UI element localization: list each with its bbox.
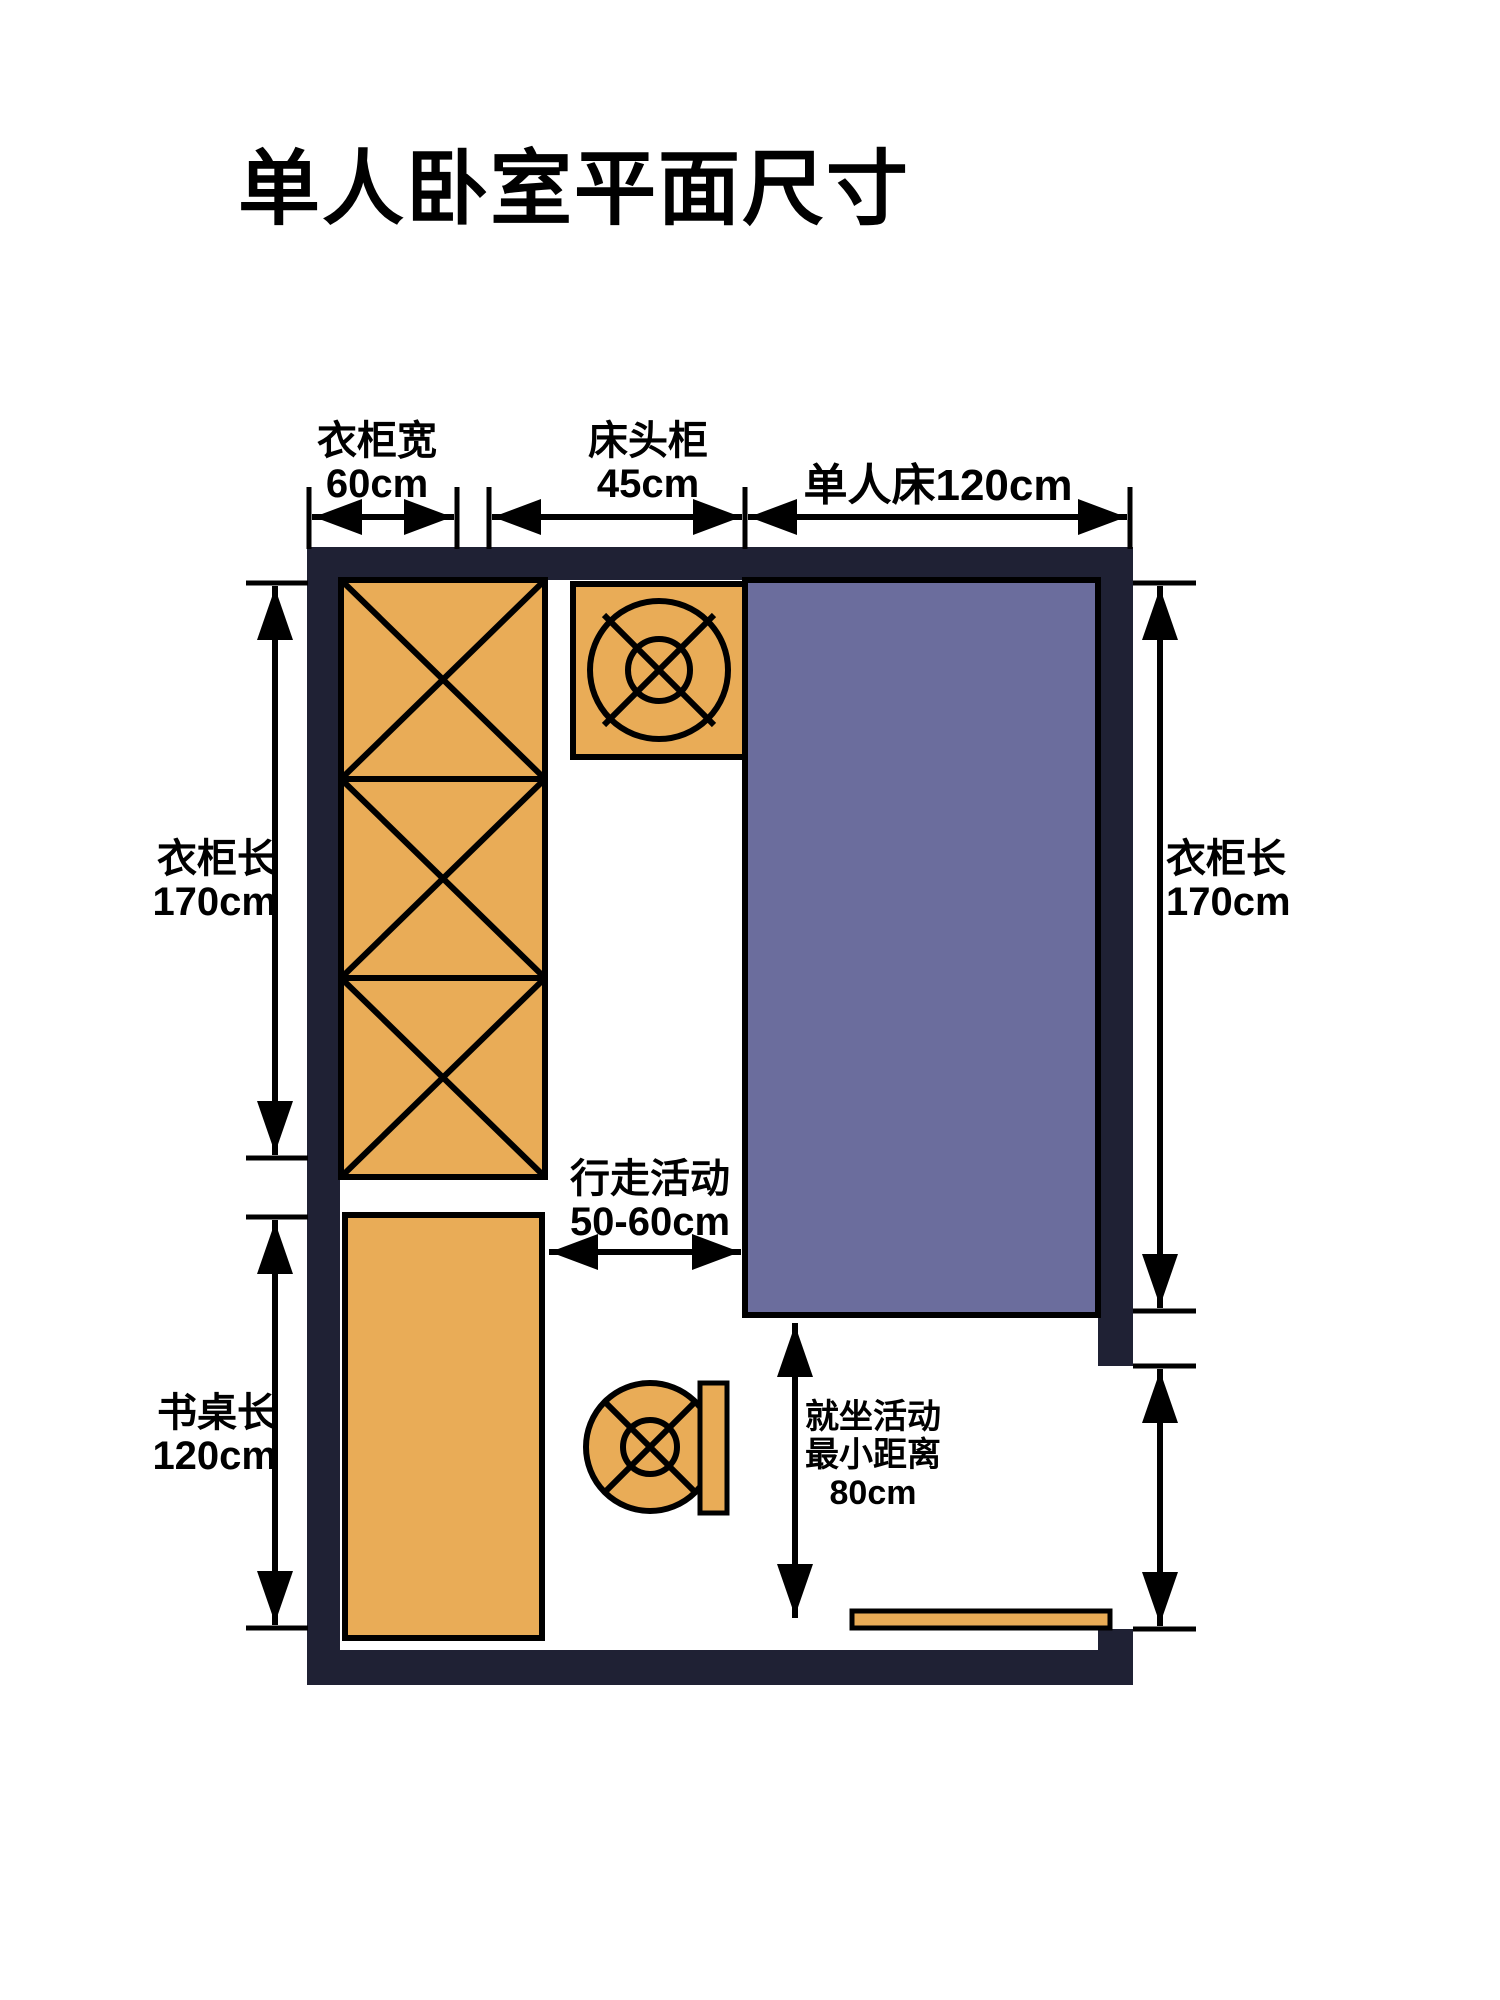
label-wardrobe-width: 衣柜宽 60cm bbox=[277, 420, 477, 506]
label-seating-clearance-line2: 最小距离 bbox=[797, 1436, 949, 1474]
label-wardrobe-length-left-name: 衣柜长 bbox=[77, 838, 277, 881]
label-nightstand-width: 床头柜 45cm bbox=[513, 420, 783, 506]
floor-plan-page: 单人卧室平面尺寸 衣柜宽 60cm 床头柜 45cm 单人床120cm 衣柜长 … bbox=[0, 0, 1500, 2000]
label-wardrobe-length-right-value: 170cm bbox=[1166, 881, 1406, 924]
wall-right-door-jamb bbox=[1098, 1629, 1133, 1685]
label-wardrobe-length-left-value: 170cm bbox=[77, 881, 277, 924]
chair-back bbox=[700, 1383, 727, 1513]
wall-top bbox=[307, 547, 1133, 580]
wall-left bbox=[307, 547, 340, 1685]
page-title: 单人卧室平面尺寸 bbox=[238, 122, 910, 241]
chair bbox=[586, 1383, 727, 1513]
desk bbox=[345, 1215, 542, 1638]
door-leaf bbox=[852, 1611, 1110, 1628]
label-desk-length-name: 书桌长 bbox=[77, 1392, 277, 1435]
label-wardrobe-length-left: 衣柜长 170cm bbox=[77, 838, 277, 924]
label-wardrobe-width-name: 衣柜宽 bbox=[277, 420, 477, 463]
wardrobe bbox=[341, 580, 545, 1177]
wall-bottom bbox=[307, 1650, 1133, 1685]
label-nightstand-name: 床头柜 bbox=[513, 420, 783, 463]
nightstand bbox=[573, 584, 745, 757]
label-seating-clearance-line1: 就坐活动 bbox=[797, 1398, 949, 1436]
dim-door-opening bbox=[1133, 1366, 1196, 1629]
label-walking-clearance-name: 行走活动 bbox=[538, 1158, 762, 1201]
label-nightstand-value: 45cm bbox=[513, 463, 783, 506]
label-wardrobe-width-value: 60cm bbox=[277, 463, 477, 506]
label-wardrobe-length-right: 衣柜长 170cm bbox=[1166, 838, 1406, 924]
label-walking-clearance-value: 50-60cm bbox=[538, 1201, 762, 1244]
label-walking-clearance: 行走活动 50-60cm bbox=[538, 1158, 762, 1244]
label-seating-clearance: 就坐活动 最小距离 80cm bbox=[797, 1398, 949, 1512]
wall-right-upper bbox=[1098, 547, 1133, 1366]
label-seating-clearance-value: 80cm bbox=[797, 1474, 949, 1512]
floor-plan-drawing bbox=[0, 0, 1500, 2000]
label-wardrobe-length-right-name: 衣柜长 bbox=[1166, 838, 1406, 881]
single-bed bbox=[745, 580, 1098, 1315]
label-single-bed: 单人床120cm bbox=[745, 462, 1131, 509]
label-desk-length: 书桌长 120cm bbox=[77, 1392, 277, 1478]
label-desk-length-value: 120cm bbox=[77, 1435, 277, 1478]
dim-wardrobe-length-right bbox=[1133, 583, 1196, 1311]
